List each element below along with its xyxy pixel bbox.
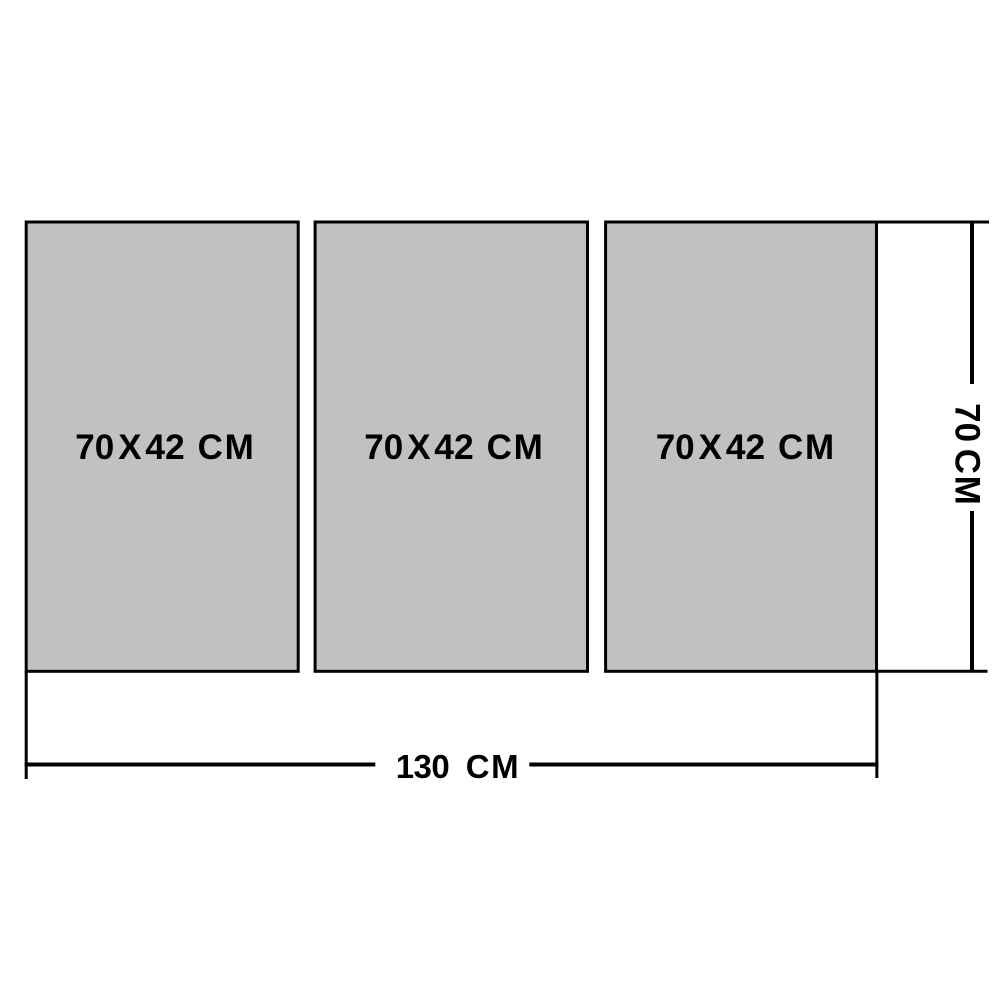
svg-text:70Х42СМ: 70Х42СМ bbox=[75, 427, 256, 467]
svg-text:70Х42СМ: 70Х42СМ bbox=[364, 427, 545, 467]
svg-text:70Х42СМ: 70Х42СМ bbox=[656, 427, 837, 467]
svg-text:70СМ: 70СМ bbox=[948, 403, 987, 507]
